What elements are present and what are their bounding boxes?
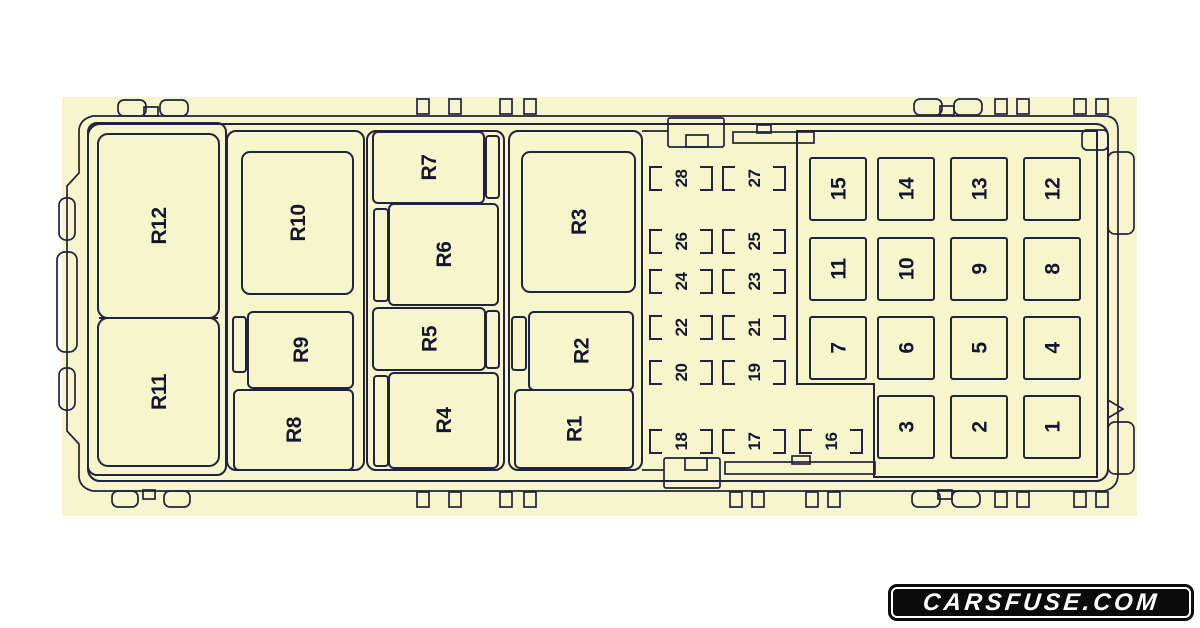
fuse-label: 7 bbox=[827, 342, 850, 353]
fuse-label: 28 bbox=[672, 170, 691, 188]
fuse-label: 8 bbox=[1041, 263, 1064, 275]
fuse-label: 12 bbox=[1041, 178, 1064, 200]
fuse-label: 5 bbox=[968, 342, 991, 354]
fuse-label: 27 bbox=[745, 170, 764, 188]
carsfuse-logo: CARSFUSE.COM bbox=[888, 584, 1194, 621]
relay-label: R7 bbox=[418, 155, 441, 181]
relay-label: R9 bbox=[290, 337, 313, 363]
fuse-box-diagram: R12R11R10R9R8R7R6R5R4R3R2R1 282726252423… bbox=[0, 0, 1200, 628]
fuse-label: 9 bbox=[968, 263, 991, 274]
relay-label: R10 bbox=[287, 204, 310, 241]
fuse-label: 26 bbox=[672, 233, 691, 251]
fuse-label: 18 bbox=[672, 433, 691, 451]
fuse-label: 6 bbox=[895, 342, 918, 353]
diagram-panel bbox=[62, 97, 1137, 516]
fuse-label: 11 bbox=[827, 258, 850, 280]
fuse-label: 2 bbox=[968, 421, 991, 432]
fuse-label: 19 bbox=[745, 364, 764, 382]
relay-label: R6 bbox=[433, 242, 456, 268]
relay-label: R2 bbox=[570, 338, 593, 364]
fuse-label: 1 bbox=[1041, 421, 1064, 433]
fuse-label: 15 bbox=[827, 177, 850, 200]
fuse-label: 13 bbox=[968, 178, 991, 200]
fuse-label: 20 bbox=[672, 364, 691, 382]
fuse-label: 14 bbox=[895, 177, 918, 200]
fuse-label: 17 bbox=[745, 433, 764, 451]
fuse-label: 10 bbox=[895, 258, 918, 280]
fuse-label: 21 bbox=[745, 319, 764, 337]
fuse-label: 16 bbox=[822, 433, 841, 451]
fuse-label: 23 bbox=[745, 273, 764, 291]
screenshot-stage: R12R11R10R9R8R7R6R5R4R3R2R1 282726252423… bbox=[0, 0, 1200, 628]
fuse-label: 25 bbox=[745, 233, 764, 251]
relay-label: R11 bbox=[148, 373, 171, 410]
relay-label: R3 bbox=[568, 209, 591, 235]
carsfuse-logo-text: CARSFUSE.COM bbox=[921, 589, 1161, 617]
relay-label: R4 bbox=[433, 407, 456, 434]
fuse-label: 3 bbox=[895, 421, 918, 432]
fuse-label: 4 bbox=[1041, 342, 1064, 354]
relay-label: R5 bbox=[418, 325, 441, 352]
relay-label: R1 bbox=[563, 415, 586, 442]
relay-label: R8 bbox=[283, 416, 306, 443]
relay-label: R12 bbox=[148, 207, 171, 244]
fuse-label: 24 bbox=[672, 272, 691, 291]
fuse-label: 22 bbox=[672, 319, 691, 337]
